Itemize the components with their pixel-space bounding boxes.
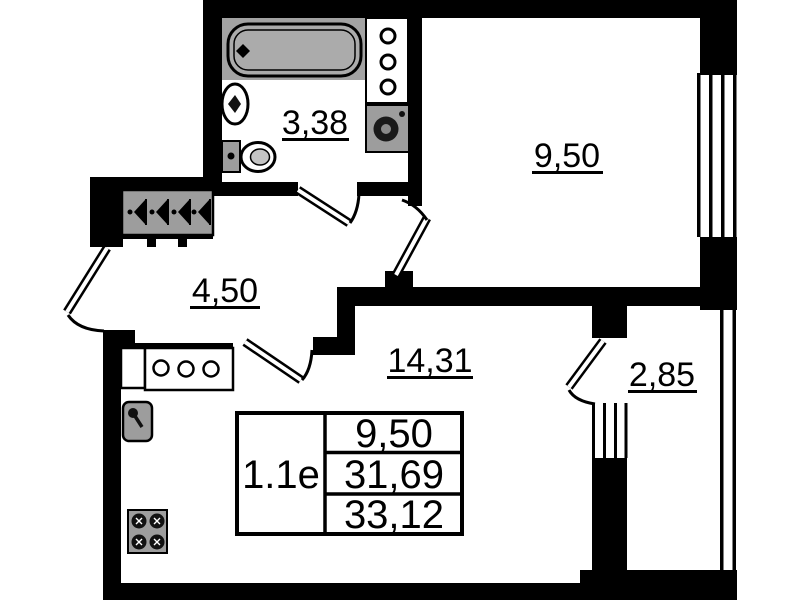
toilet-icon <box>222 141 275 172</box>
hallway-area-label: 4,50 <box>192 272 258 310</box>
window-glazing-line <box>614 403 617 458</box>
label-underline <box>190 306 260 309</box>
wall-balcony-left-lower <box>592 458 627 572</box>
label-underline <box>532 171 603 174</box>
bathroom-area-label: 3,38 <box>282 104 348 142</box>
stove-icon <box>128 510 167 553</box>
room-door-icon <box>396 200 427 275</box>
kitchen-sink-icon <box>123 402 152 441</box>
floor-plan: 3,38 9,50 4,50 14,31 2,85 1.1е 9,50 31,6… <box>0 0 799 600</box>
legend-table: 1.1е 9,50 31,69 33,12 <box>237 412 462 537</box>
wall-hall-living <box>313 337 355 355</box>
legend-unit: 1.1е <box>242 453 320 497</box>
entry-door-icon <box>67 248 107 331</box>
bathtub-icon <box>222 18 367 80</box>
glazing-line <box>720 306 724 572</box>
legend-value-living: 9,50 <box>355 412 433 456</box>
wall-balcony-stub <box>592 306 627 338</box>
wall-right-top <box>700 0 737 75</box>
room-area-label: 9,50 <box>534 137 600 175</box>
window-glazing-line <box>733 73 737 237</box>
label-underline <box>282 138 349 141</box>
label-underline <box>387 376 473 379</box>
window-glazing-line <box>721 73 725 237</box>
living-area-label: 14,31 <box>387 342 472 380</box>
wall-top <box>205 0 737 18</box>
wall-bath-room-divider <box>408 18 422 206</box>
window-glazing-line <box>697 73 701 237</box>
wall-left <box>103 330 121 600</box>
wash-basin-icon <box>222 84 248 124</box>
window-balcony-icon <box>592 403 628 458</box>
balcony-area-label: 2,85 <box>629 356 695 394</box>
bathroom-door-icon <box>298 190 359 223</box>
balcony-outer-glazing-icon <box>720 306 736 572</box>
washing-machine-icon <box>366 105 409 152</box>
wall-bath-left <box>203 0 222 196</box>
window-glazing-line <box>603 403 606 458</box>
shelf-icon <box>366 18 408 103</box>
legend-value-total: 33,12 <box>344 493 444 537</box>
living-door-icon <box>245 342 312 380</box>
wardrobe-icon <box>122 190 213 247</box>
label-underline <box>628 390 697 393</box>
wall-bottom-right-block <box>580 570 737 600</box>
wall-wardrobe-band <box>92 177 222 190</box>
window-room-icon <box>697 73 737 237</box>
kitchen-counter-icon <box>121 348 233 390</box>
window-glazing-line <box>592 403 595 458</box>
window-glazing-line <box>625 403 628 458</box>
floor-plan-svg: 3,38 9,50 4,50 14,31 2,85 1.1е 9,50 31,6… <box>0 0 799 600</box>
wall-bath-bottom-right <box>357 182 412 196</box>
legend-value-area: 31,69 <box>344 453 444 497</box>
glazing-line <box>733 306 737 572</box>
balcony-door-icon <box>569 341 603 404</box>
window-glazing-line <box>709 73 713 237</box>
